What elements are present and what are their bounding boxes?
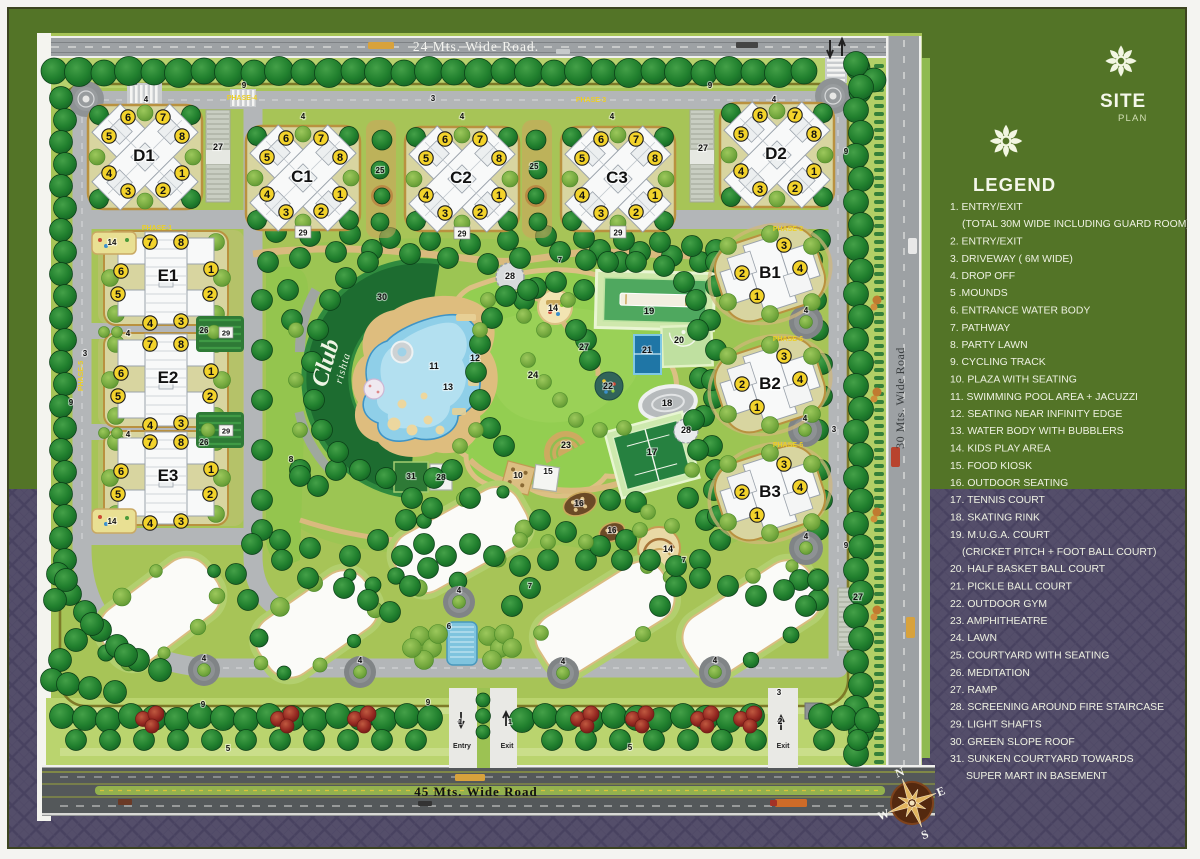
svg-text:2: 2 bbox=[477, 207, 483, 219]
svg-text:4: 4 bbox=[561, 657, 566, 666]
svg-text:9. CYCLING TRACK: 9. CYCLING TRACK bbox=[950, 357, 1046, 368]
svg-text:2: 2 bbox=[739, 268, 745, 280]
svg-text:28. SCREENING AROUND FIRE STAI: 28. SCREENING AROUND FIRE STAIRCASE bbox=[950, 702, 1164, 713]
svg-text:2: 2 bbox=[792, 183, 798, 195]
svg-text:4: 4 bbox=[738, 166, 745, 178]
svg-text:4: 4 bbox=[804, 532, 809, 541]
svg-text:28: 28 bbox=[681, 425, 691, 435]
svg-text:9: 9 bbox=[708, 81, 713, 90]
svg-text:4: 4 bbox=[358, 656, 363, 665]
svg-text:Exit: Exit bbox=[777, 743, 791, 750]
svg-text:E1: E1 bbox=[158, 266, 179, 285]
svg-text:8: 8 bbox=[179, 131, 185, 143]
svg-text:19: 19 bbox=[644, 306, 655, 317]
svg-text:14: 14 bbox=[548, 303, 558, 313]
svg-text:4: 4 bbox=[202, 654, 207, 663]
svg-text:6: 6 bbox=[447, 622, 452, 631]
svg-text:11: 11 bbox=[429, 361, 439, 371]
svg-text:1: 1 bbox=[496, 190, 502, 202]
svg-text:3: 3 bbox=[178, 316, 184, 328]
svg-text:3: 3 bbox=[431, 94, 436, 103]
svg-text:30 Mts. Wide Road: 30 Mts. Wide Road bbox=[893, 347, 907, 449]
svg-text:PHASE-6: PHASE-6 bbox=[773, 336, 803, 343]
svg-text:6: 6 bbox=[598, 134, 604, 146]
svg-text:7. PATHWAY: 7. PATHWAY bbox=[950, 323, 1010, 334]
svg-text:4: 4 bbox=[460, 112, 465, 121]
svg-text:4: 4 bbox=[457, 586, 462, 595]
svg-text:C1: C1 bbox=[291, 167, 313, 186]
svg-text:30. GREEN SLOPE ROOF: 30. GREEN SLOPE ROOF bbox=[950, 737, 1075, 748]
svg-text:B2: B2 bbox=[759, 374, 781, 393]
svg-text:5: 5 bbox=[423, 153, 429, 165]
svg-text:16: 16 bbox=[608, 526, 617, 535]
svg-text:29: 29 bbox=[222, 329, 230, 338]
svg-text:8: 8 bbox=[289, 454, 294, 464]
svg-text:4: 4 bbox=[797, 482, 804, 494]
svg-text:3: 3 bbox=[178, 418, 184, 430]
svg-text:3: 3 bbox=[442, 208, 448, 220]
svg-text:4: 4 bbox=[126, 430, 131, 439]
svg-text:B3: B3 bbox=[759, 482, 781, 501]
svg-text:16: 16 bbox=[574, 498, 584, 508]
svg-text:7: 7 bbox=[558, 255, 562, 264]
svg-text:24. LAWN: 24. LAWN bbox=[950, 633, 997, 644]
svg-text:4: 4 bbox=[610, 112, 615, 121]
svg-text:3: 3 bbox=[83, 349, 88, 358]
svg-text:1: 1 bbox=[754, 291, 760, 303]
svg-text:1: 1 bbox=[208, 366, 214, 378]
svg-text:3: 3 bbox=[283, 207, 289, 219]
svg-text:6: 6 bbox=[118, 368, 124, 380]
svg-text:31: 31 bbox=[406, 471, 416, 481]
svg-text:45 Mts. Wide Road: 45 Mts. Wide Road bbox=[414, 784, 537, 799]
svg-text:23. AMPHITHEATRE: 23. AMPHITHEATRE bbox=[950, 616, 1047, 627]
svg-text:18. SKATING RINK: 18. SKATING RINK bbox=[950, 513, 1040, 524]
svg-text:D1: D1 bbox=[133, 146, 155, 165]
svg-text:5: 5 bbox=[264, 152, 270, 164]
svg-text:4: 4 bbox=[147, 518, 154, 530]
svg-text:29: 29 bbox=[614, 229, 623, 238]
svg-text:29: 29 bbox=[299, 229, 308, 238]
svg-text:28: 28 bbox=[436, 472, 446, 482]
svg-text:1: 1 bbox=[754, 402, 760, 414]
svg-text:2: 2 bbox=[160, 185, 166, 197]
svg-text:3: 3 bbox=[125, 186, 131, 198]
svg-text:4: 4 bbox=[301, 112, 306, 121]
svg-text:1: 1 bbox=[754, 510, 760, 522]
svg-text:7: 7 bbox=[633, 134, 639, 146]
svg-text:2: 2 bbox=[207, 391, 213, 403]
svg-text:27: 27 bbox=[213, 142, 223, 152]
svg-text:2: 2 bbox=[318, 206, 324, 218]
svg-text:1: 1 bbox=[458, 719, 462, 726]
svg-text:22. OUTDOOR GYM: 22. OUTDOOR GYM bbox=[950, 599, 1047, 610]
svg-text:23: 23 bbox=[561, 440, 571, 450]
svg-text:25: 25 bbox=[530, 162, 539, 171]
svg-text:14: 14 bbox=[108, 238, 117, 247]
svg-text:14: 14 bbox=[108, 517, 117, 526]
svg-text:9: 9 bbox=[201, 700, 206, 709]
svg-text:9: 9 bbox=[426, 698, 431, 707]
svg-text:26: 26 bbox=[200, 438, 209, 447]
svg-text:4: 4 bbox=[264, 189, 271, 201]
svg-text:(CRICKET PITCH + FOOT BALL COU: (CRICKET PITCH + FOOT BALL COURT) bbox=[962, 547, 1156, 558]
svg-text:25. COURTYARD WITH SEATING: 25. COURTYARD WITH SEATING bbox=[950, 651, 1109, 662]
svg-text:PHASE-6: PHASE-6 bbox=[773, 442, 803, 449]
svg-text:3: 3 bbox=[781, 351, 787, 363]
svg-text:4: 4 bbox=[144, 95, 149, 104]
svg-text:2: 2 bbox=[207, 489, 213, 501]
svg-text:15: 15 bbox=[543, 466, 553, 476]
svg-text:4: 4 bbox=[423, 190, 430, 202]
svg-text:3: 3 bbox=[178, 516, 184, 528]
svg-text:SUPER MART IN BASEMENT: SUPER MART IN BASEMENT bbox=[966, 771, 1108, 782]
svg-text:21. PICKLE BALL COURT: 21. PICKLE BALL COURT bbox=[950, 582, 1073, 593]
svg-text:C3: C3 bbox=[606, 168, 628, 187]
svg-text:6: 6 bbox=[118, 266, 124, 278]
svg-text:4. DROP OFF: 4. DROP OFF bbox=[950, 271, 1015, 282]
svg-text:1: 1 bbox=[508, 719, 512, 726]
svg-text:27: 27 bbox=[579, 342, 589, 352]
svg-text:3: 3 bbox=[757, 184, 763, 196]
svg-text:20. HALF BASKET BALL COURT: 20. HALF BASKET BALL COURT bbox=[950, 564, 1106, 575]
svg-text:1: 1 bbox=[337, 189, 343, 201]
svg-text:30: 30 bbox=[377, 292, 387, 302]
svg-text:3: 3 bbox=[598, 208, 604, 220]
svg-text:C2: C2 bbox=[450, 168, 472, 187]
svg-text:10: 10 bbox=[513, 470, 523, 480]
svg-text:9: 9 bbox=[242, 81, 247, 90]
svg-text:6: 6 bbox=[757, 110, 763, 122]
svg-text:5: 5 bbox=[115, 289, 121, 301]
svg-text:5: 5 bbox=[115, 391, 121, 403]
svg-text:2: 2 bbox=[778, 716, 783, 726]
svg-text:13. WATER BODY WITH BUBBLERS: 13. WATER BODY WITH BUBBLERS bbox=[950, 426, 1124, 437]
svg-text:5 .MOUNDS: 5 .MOUNDS bbox=[950, 288, 1008, 299]
svg-text:3: 3 bbox=[777, 688, 782, 697]
svg-text:8: 8 bbox=[178, 437, 184, 449]
svg-text:7: 7 bbox=[318, 133, 324, 145]
svg-text:LEGEND: LEGEND bbox=[973, 174, 1056, 195]
svg-text:3: 3 bbox=[832, 425, 837, 434]
svg-text:2: 2 bbox=[739, 487, 745, 499]
svg-text:15. FOOD KIOSK: 15. FOOD KIOSK bbox=[950, 461, 1032, 472]
svg-text:7: 7 bbox=[147, 237, 153, 249]
svg-text:7: 7 bbox=[147, 339, 153, 351]
svg-text:4: 4 bbox=[797, 374, 804, 386]
svg-text:31. SUNKEN COURTYARD TOWARDS: 31. SUNKEN COURTYARD TOWARDS bbox=[950, 754, 1134, 765]
svg-text:PHASE-2: PHASE-2 bbox=[773, 226, 803, 233]
svg-text:3: 3 bbox=[781, 240, 787, 252]
svg-text:Exit: Exit bbox=[501, 743, 515, 750]
svg-text:6: 6 bbox=[283, 133, 289, 145]
svg-text:2: 2 bbox=[739, 379, 745, 391]
svg-text:7: 7 bbox=[682, 555, 686, 564]
svg-text:4: 4 bbox=[803, 414, 808, 423]
svg-text:6. ENTRANCE WATER BODY: 6. ENTRANCE WATER BODY bbox=[950, 306, 1090, 317]
svg-text:24 Mts. Wide Road.: 24 Mts. Wide Road. bbox=[413, 39, 539, 54]
svg-text:27: 27 bbox=[698, 143, 708, 153]
svg-text:26: 26 bbox=[200, 326, 209, 335]
svg-text:14: 14 bbox=[663, 544, 673, 554]
svg-text:1: 1 bbox=[208, 464, 214, 476]
svg-text:4: 4 bbox=[804, 306, 809, 315]
svg-text:12: 12 bbox=[470, 353, 480, 363]
svg-text:11. SWIMMING POOL AREA + JACUZ: 11. SWIMMING POOL AREA + JACUZZI bbox=[950, 392, 1138, 403]
svg-text:19. M.U.G.A. COURT: 19. M.U.G.A. COURT bbox=[950, 530, 1050, 541]
svg-text:8: 8 bbox=[652, 153, 658, 165]
svg-text:4: 4 bbox=[772, 95, 777, 104]
svg-text:28: 28 bbox=[505, 271, 515, 281]
svg-text:9: 9 bbox=[844, 147, 849, 156]
svg-text:5: 5 bbox=[115, 489, 121, 501]
svg-text:4: 4 bbox=[126, 329, 131, 338]
svg-text:5: 5 bbox=[106, 131, 112, 143]
svg-text:4: 4 bbox=[106, 168, 113, 180]
svg-text:8: 8 bbox=[337, 152, 343, 164]
svg-text:7: 7 bbox=[147, 437, 153, 449]
svg-text:7: 7 bbox=[792, 110, 798, 122]
svg-text:Entry: Entry bbox=[453, 743, 471, 750]
svg-text:13: 13 bbox=[443, 382, 453, 392]
svg-text:21: 21 bbox=[642, 345, 652, 355]
svg-text:27. RAMP: 27. RAMP bbox=[950, 685, 997, 696]
svg-text:8: 8 bbox=[178, 339, 184, 351]
svg-text:9: 9 bbox=[844, 541, 849, 550]
svg-text:D2: D2 bbox=[765, 144, 787, 163]
svg-text:6: 6 bbox=[442, 134, 448, 146]
svg-text:4: 4 bbox=[797, 263, 804, 275]
svg-text:6: 6 bbox=[125, 112, 131, 124]
svg-text:3. DRIVEWAY ( 6M WIDE): 3. DRIVEWAY ( 6M WIDE) bbox=[950, 254, 1073, 265]
svg-text:8. PARTY LAWN: 8. PARTY LAWN bbox=[950, 340, 1028, 351]
svg-text:4: 4 bbox=[579, 190, 586, 202]
svg-text:2: 2 bbox=[633, 207, 639, 219]
svg-text:PHASE-3: PHASE-3 bbox=[576, 97, 606, 104]
svg-text:16. OUTDOOR SEATING: 16. OUTDOOR SEATING bbox=[950, 478, 1068, 489]
svg-text:1: 1 bbox=[208, 264, 214, 276]
svg-text:3: 3 bbox=[781, 459, 787, 471]
svg-text:B1: B1 bbox=[759, 263, 781, 282]
svg-text:5: 5 bbox=[738, 129, 744, 141]
svg-text:10. PLAZA WITH SEATING: 10. PLAZA WITH SEATING bbox=[950, 375, 1077, 386]
svg-text:5: 5 bbox=[579, 153, 585, 165]
svg-text:1. ENTRY/EXIT: 1. ENTRY/EXIT bbox=[950, 202, 1023, 213]
svg-text:8: 8 bbox=[178, 237, 184, 249]
svg-text:1: 1 bbox=[179, 168, 185, 180]
svg-text:PHASE-1: PHASE-1 bbox=[142, 225, 172, 232]
svg-text:9: 9 bbox=[69, 398, 74, 407]
svg-text:27: 27 bbox=[853, 592, 863, 602]
svg-text:7: 7 bbox=[160, 112, 166, 124]
svg-text:1: 1 bbox=[652, 190, 658, 202]
svg-text:29: 29 bbox=[458, 230, 467, 239]
svg-text:E3: E3 bbox=[158, 466, 179, 485]
svg-text:2: 2 bbox=[207, 289, 213, 301]
svg-text:7: 7 bbox=[477, 134, 483, 146]
svg-text:2. ENTRY/EXIT: 2. ENTRY/EXIT bbox=[950, 237, 1023, 248]
svg-text:29. LIGHT SHAFTS: 29. LIGHT SHAFTS bbox=[950, 720, 1042, 731]
svg-text:29: 29 bbox=[222, 427, 230, 436]
svg-text:PLAN: PLAN bbox=[1118, 113, 1148, 124]
svg-text:SITE: SITE bbox=[1100, 91, 1146, 112]
svg-text:8: 8 bbox=[811, 129, 817, 141]
svg-text:PHASE-5: PHASE-5 bbox=[78, 361, 85, 391]
svg-text:12. SEATING NEAR INFINITY EDGE: 12. SEATING NEAR INFINITY EDGE bbox=[950, 409, 1122, 420]
svg-text:PHASE-4: PHASE-4 bbox=[227, 95, 257, 102]
svg-text:17: 17 bbox=[647, 447, 658, 458]
svg-text:5: 5 bbox=[226, 744, 231, 753]
svg-text:18: 18 bbox=[662, 398, 673, 409]
svg-text:1: 1 bbox=[811, 166, 817, 178]
svg-text:25: 25 bbox=[376, 166, 385, 175]
svg-text:4: 4 bbox=[713, 656, 718, 665]
svg-text:E2: E2 bbox=[158, 368, 179, 387]
svg-text:6: 6 bbox=[118, 466, 124, 478]
svg-text:8: 8 bbox=[496, 153, 502, 165]
svg-text:17. TENNIS COURT: 17. TENNIS COURT bbox=[950, 495, 1046, 506]
svg-text:26. MEDITATION: 26. MEDITATION bbox=[950, 668, 1030, 679]
svg-text:24: 24 bbox=[528, 370, 539, 381]
svg-text:7: 7 bbox=[528, 581, 532, 590]
svg-text:22: 22 bbox=[603, 381, 613, 391]
svg-text:20: 20 bbox=[674, 335, 684, 345]
svg-text:5: 5 bbox=[628, 743, 633, 752]
svg-text:(TOTAL 30M WIDE INCLUDING GUAR: (TOTAL 30M WIDE INCLUDING GUARD ROOM) bbox=[962, 219, 1190, 230]
svg-text:14. KIDS PLAY AREA: 14. KIDS PLAY AREA bbox=[950, 444, 1051, 455]
svg-text:4: 4 bbox=[147, 318, 154, 330]
